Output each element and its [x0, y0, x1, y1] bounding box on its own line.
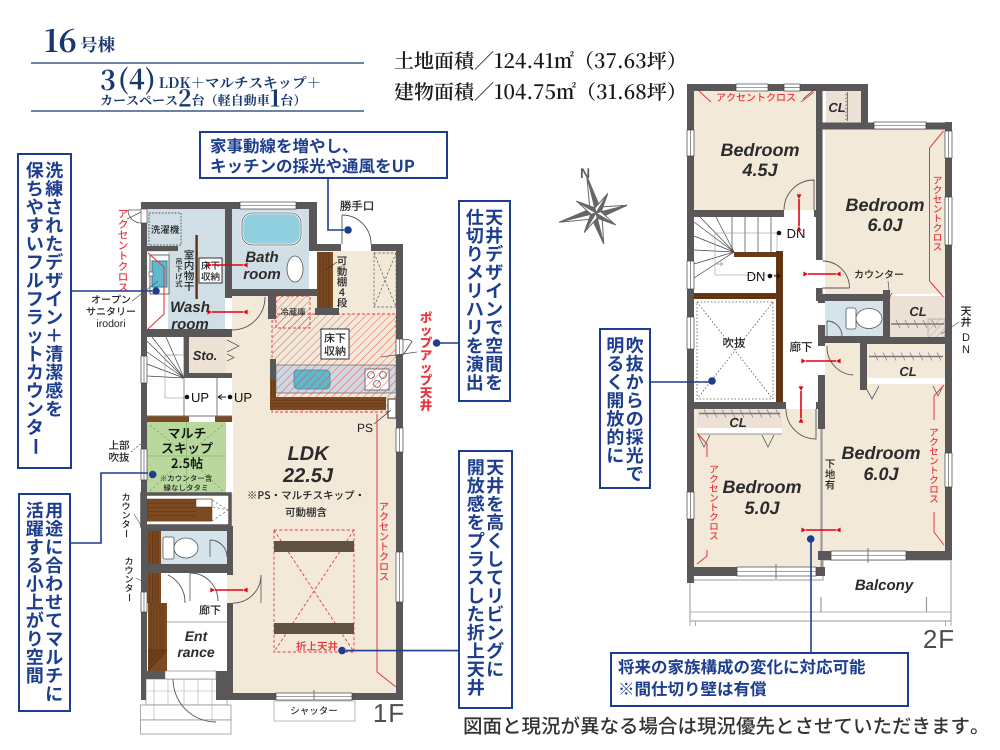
svg-text:2F: 2F	[923, 624, 955, 654]
svg-text:Bath: Bath	[245, 249, 278, 266]
svg-text:Wash: Wash	[170, 299, 210, 316]
svg-text:UP: UP	[191, 390, 209, 405]
svg-text:5.0J: 5.0J	[744, 498, 780, 518]
svg-text:CL: CL	[729, 415, 746, 430]
svg-text:CL: CL	[899, 364, 916, 379]
svg-text:Sto.: Sto.	[193, 348, 218, 363]
svg-text:6.0J: 6.0J	[863, 464, 899, 484]
svg-text:Bedroom: Bedroom	[720, 140, 799, 160]
svg-text:D: D	[962, 332, 970, 344]
svg-text:1F: 1F	[373, 698, 405, 728]
svg-text:Bedroom: Bedroom	[841, 443, 920, 463]
svg-text:UP: UP	[234, 390, 252, 405]
svg-text:irodori: irodori	[96, 318, 125, 330]
svg-text:CL: CL	[828, 100, 845, 115]
svg-text:22.5J: 22.5J	[282, 465, 334, 487]
svg-text:DN: DN	[747, 269, 766, 284]
svg-text:Balcony: Balcony	[855, 577, 914, 594]
svg-text:DN: DN	[787, 226, 806, 241]
svg-text:N: N	[580, 165, 590, 181]
svg-text:N: N	[962, 344, 970, 356]
svg-text:LDK: LDK	[287, 443, 330, 465]
svg-text:room: room	[243, 266, 281, 283]
svg-text:Ent: Ent	[185, 628, 209, 644]
svg-text:Bedroom: Bedroom	[722, 477, 801, 497]
svg-text:Bedroom: Bedroom	[845, 195, 924, 215]
svg-text:rance: rance	[177, 644, 215, 660]
svg-text:PS: PS	[357, 421, 373, 435]
svg-text:6.0J: 6.0J	[867, 215, 903, 235]
svg-text:4.5J: 4.5J	[741, 160, 778, 180]
svg-text:CL: CL	[909, 304, 926, 319]
